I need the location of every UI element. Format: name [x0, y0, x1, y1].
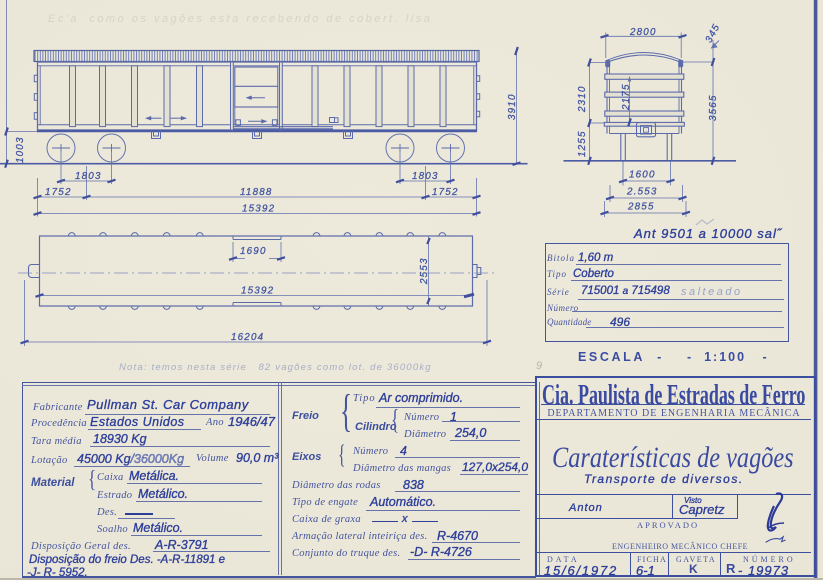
svg-text:15392: 15392: [241, 286, 274, 297]
svg-text:1600: 1600: [629, 170, 656, 181]
svg-text:345: 345: [704, 22, 723, 45]
svg-text:2553: 2553: [419, 257, 430, 285]
svg-text:1003: 1003: [15, 136, 26, 163]
svg-text:3910: 3910: [507, 93, 518, 120]
svg-text:1255: 1255: [577, 130, 588, 157]
svg-text:1690: 1690: [240, 246, 267, 257]
svg-text:15392: 15392: [242, 204, 275, 215]
svg-text:1803: 1803: [75, 171, 102, 182]
svg-text:1752: 1752: [45, 187, 72, 198]
svg-text:11888: 11888: [240, 187, 273, 198]
svg-text:1803: 1803: [412, 171, 439, 182]
svg-text:2855: 2855: [627, 202, 655, 213]
svg-text:2800: 2800: [629, 27, 657, 38]
svg-text:1752: 1752: [432, 187, 459, 198]
svg-text:3565: 3565: [708, 94, 719, 121]
svg-text:2.553: 2.553: [626, 187, 658, 198]
svg-text:2175: 2175: [621, 83, 632, 111]
svg-text:16204: 16204: [231, 332, 264, 343]
svg-text:2310: 2310: [577, 85, 588, 113]
